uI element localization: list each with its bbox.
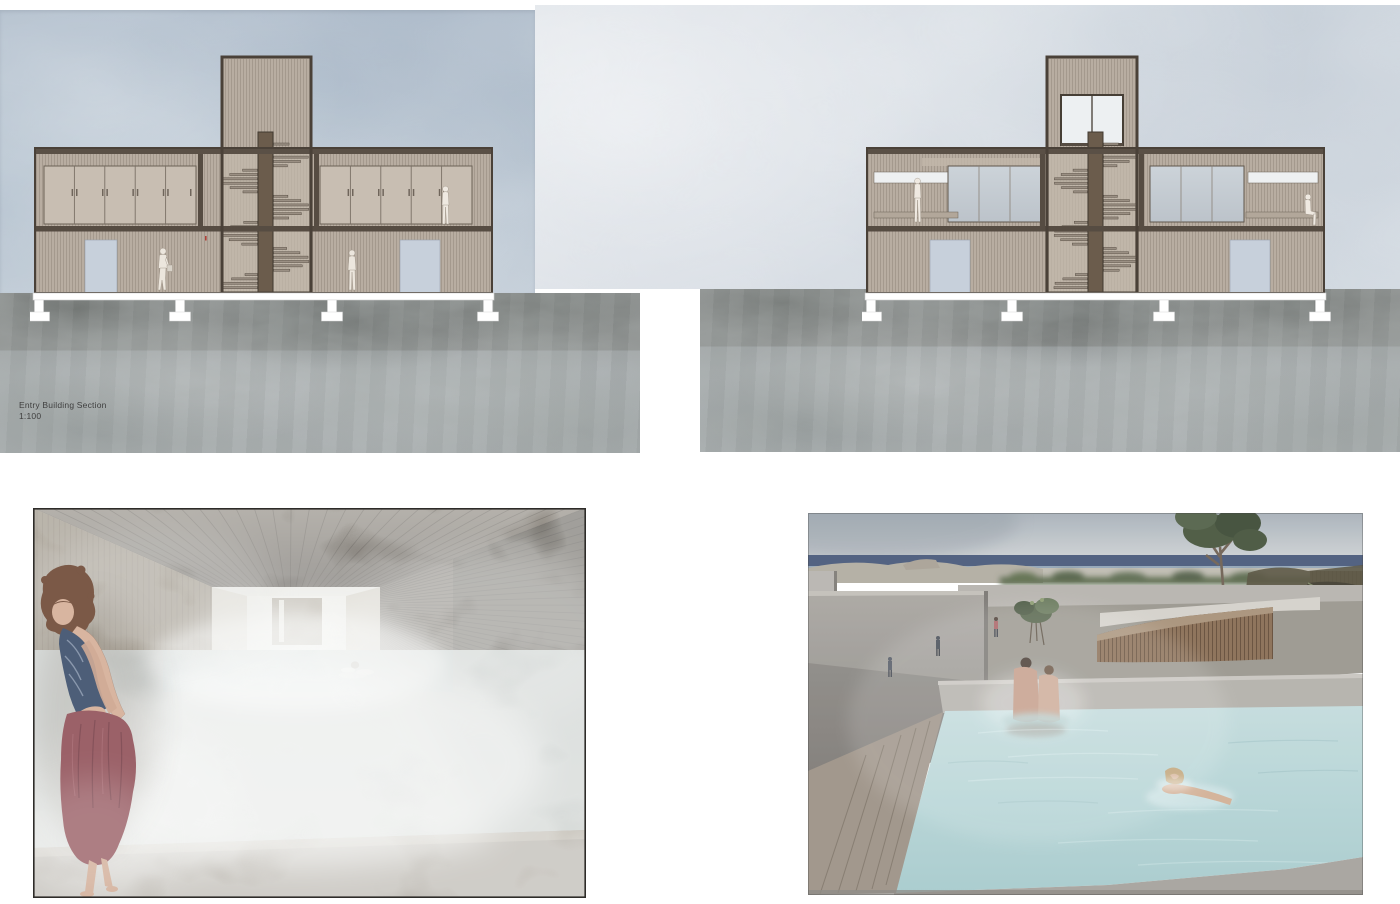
glazing [1150, 166, 1244, 222]
presentation-board: Entry Building Section 1:100 [0, 0, 1400, 904]
strip-window [1248, 172, 1318, 183]
render-interior-steam-pool [33, 508, 586, 898]
door-opening-right [400, 240, 440, 293]
caption-title: Entry Building Section [19, 400, 107, 411]
stair-column [1088, 132, 1103, 293]
door-opening-left [85, 240, 117, 293]
floor-slab [35, 226, 492, 232]
door-opening-right [1230, 240, 1270, 293]
red-mark [205, 236, 207, 241]
building-section-left [30, 48, 500, 328]
strip-window [874, 172, 948, 183]
drawing-caption: Entry Building Section 1:100 [19, 400, 107, 422]
render-exterior-pool [808, 513, 1363, 895]
floor-slab [867, 226, 1324, 232]
cabinet-row-left [44, 166, 196, 224]
stilt-foundation [30, 293, 499, 321]
door-opening-left [930, 240, 970, 293]
building-section-right [862, 48, 1332, 328]
cabinet-row-right [320, 166, 472, 224]
stair-column [258, 132, 273, 293]
caption-scale: 1:100 [19, 411, 107, 422]
stilt-foundation [862, 293, 1331, 321]
glazing [948, 166, 1042, 222]
